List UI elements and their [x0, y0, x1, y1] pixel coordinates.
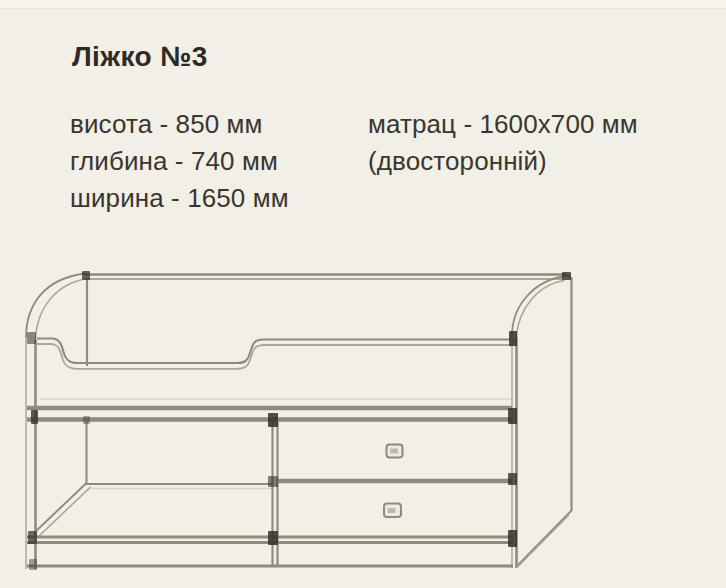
drawer-1-handle: [387, 445, 403, 458]
center-divider: [273, 421, 278, 567]
product-card-page: { "header": { "title": "Ліжко №3" }, "sp…: [0, 0, 726, 588]
back-top-rail: [85, 275, 566, 280]
right-side-panel: [512, 275, 572, 569]
open-compartment: [34, 422, 272, 538]
safety-guard-rail: [37, 339, 511, 369]
product-card: Ліжко №3 висота - 850 мм глибина - 740 м…: [0, 0, 726, 588]
bed-technical-drawing: [0, 0, 726, 588]
drawers: [278, 445, 512, 518]
drawer-2-handle: [384, 504, 401, 518]
